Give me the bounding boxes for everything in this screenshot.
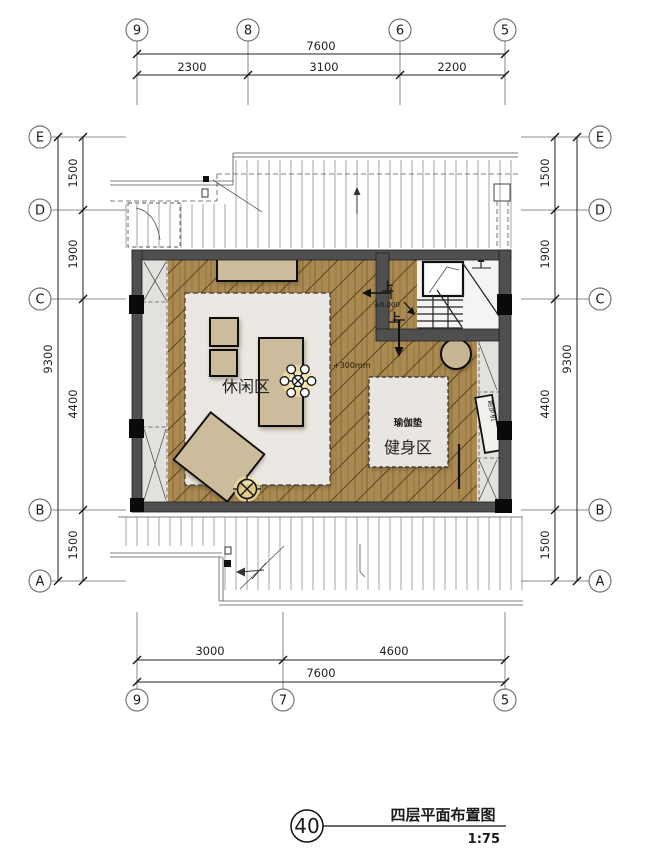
grid-bubble-left-C: C [29, 288, 51, 310]
svg-text:A: A [36, 575, 45, 590]
title-block: 40 四层平面布置图 1:75 [291, 806, 506, 847]
dim-bottom-seg-2: 4600 [379, 644, 408, 658]
dim-top-seg-2: 3100 [309, 60, 338, 74]
roof-top-hatch [233, 160, 518, 248]
plan-interior: 跑步机 [142, 254, 504, 511]
floor-plan-sheet: 跑步机 [0, 0, 660, 865]
dim-right-seg-1: 1500 [538, 158, 552, 187]
bench-cabinet [217, 258, 297, 281]
roof-top-hatch-left [118, 204, 233, 248]
right-dimension-chain: 1500 1900 4400 1500 9300 E D C B A [521, 126, 611, 592]
room-label-fitness: 健身区 [384, 438, 432, 457]
wall-right [499, 250, 511, 512]
svg-text:9: 9 [133, 694, 141, 709]
drawing-number: 40 [294, 814, 319, 838]
dim-top-total: 7600 [306, 39, 335, 53]
dim-right-seg-3: 4400 [538, 389, 552, 418]
svg-text:6: 6 [396, 24, 404, 39]
svg-text:7: 7 [279, 694, 287, 709]
dim-bottom-seg-1: 3000 [195, 644, 224, 658]
dim-left-seg-1: 1500 [66, 158, 80, 187]
svg-text:C: C [35, 293, 44, 308]
grid-bubble-top-5: 5 [494, 19, 516, 41]
stair-landing [423, 262, 463, 296]
svg-text:8: 8 [244, 24, 252, 39]
grid-bubble-top-6: 6 [389, 19, 411, 41]
label-stair-level: ±0.000 [374, 301, 400, 309]
dim-left-seg-3: 4400 [66, 389, 80, 418]
roof-top-detail-open-box [202, 189, 208, 197]
grid-bubble-top-9: 9 [126, 19, 148, 41]
drawing-scale: 1:75 [468, 832, 500, 847]
svg-text:B: B [596, 504, 605, 519]
roof-top-detail-solid-box [203, 176, 209, 182]
stair-bottom-wall [376, 329, 499, 341]
wall-bottom [132, 502, 511, 512]
dim-right-total: 9300 [560, 344, 574, 373]
room-label-leisure: 休闲区 [222, 377, 270, 396]
side-table-2 [210, 350, 237, 376]
roof-bottom-hatch [222, 517, 523, 590]
left-dim-ticks [54, 133, 87, 585]
exercise-ball [441, 339, 471, 369]
svg-text:D: D [595, 204, 605, 219]
label-floor-level: +300mm [333, 361, 371, 370]
grid-bubble-right-C: C [589, 288, 611, 310]
side-table-1 [210, 318, 238, 346]
svg-text:E: E [36, 131, 44, 146]
left-dimension-chain: 9300 1500 1900 4400 1500 E D C B A [29, 126, 126, 592]
grid-bubble-right-B: B [589, 499, 611, 521]
dim-left-seg-2: 1900 [66, 239, 80, 268]
wall-left [132, 250, 142, 512]
dim-top-seg-1: 2300 [177, 60, 206, 74]
grid-bubble-bottom-7: 7 [272, 689, 294, 711]
svg-text:5: 5 [501, 694, 509, 709]
dim-right-seg-4: 1500 [538, 530, 552, 559]
label-stair-up-a: 上 [382, 279, 394, 294]
drawing-title: 四层平面布置图 [390, 806, 495, 824]
svg-text:5: 5 [501, 24, 509, 39]
grid-bubble-bottom-5: 5 [494, 689, 516, 711]
dim-bottom-total: 7600 [306, 666, 335, 680]
grid-bubble-top-8: 8 [237, 19, 259, 41]
svg-text:D: D [35, 204, 45, 219]
svg-text:B: B [36, 504, 45, 519]
svg-text:A: A [596, 575, 605, 590]
svg-text:E: E [596, 131, 604, 146]
floor-plan-canvas: 跑步机 [0, 0, 660, 865]
dim-right-seg-2: 1900 [538, 239, 552, 268]
roof-bottom-detail-open-box [225, 547, 231, 554]
wall-top [132, 250, 511, 260]
dim-left-total: 9300 [41, 344, 55, 373]
label-yoga-mat: 瑜伽垫 [394, 417, 423, 429]
grid-bubble-bottom-9: 9 [126, 689, 148, 711]
svg-text:9: 9 [133, 24, 141, 39]
grid-bubble-left-D: D [29, 199, 51, 221]
grid-bubble-right-A: A [589, 570, 611, 592]
top-dimension-chain: 7600 2300 3100 2200 9 8 6 5 [126, 19, 516, 105]
roof-top [110, 153, 518, 248]
svg-text:C: C [595, 293, 604, 308]
bottom-dimension-chain: 3000 4600 7600 9 7 5 [126, 612, 516, 711]
grid-bubble-right-D: D [589, 199, 611, 221]
dim-top-seg-3: 2200 [437, 60, 466, 74]
grid-bubble-left-E: E [29, 126, 51, 148]
roof-bottom-detail-solid-box [224, 560, 231, 567]
grid-bubble-right-E: E [589, 126, 611, 148]
grid-bubble-left-B: B [29, 499, 51, 521]
roof-bottom [110, 517, 523, 605]
roof-bottom-hatch-left [118, 517, 222, 546]
dim-left-seg-4: 1500 [66, 530, 80, 559]
grid-bubble-left-A: A [29, 570, 51, 592]
